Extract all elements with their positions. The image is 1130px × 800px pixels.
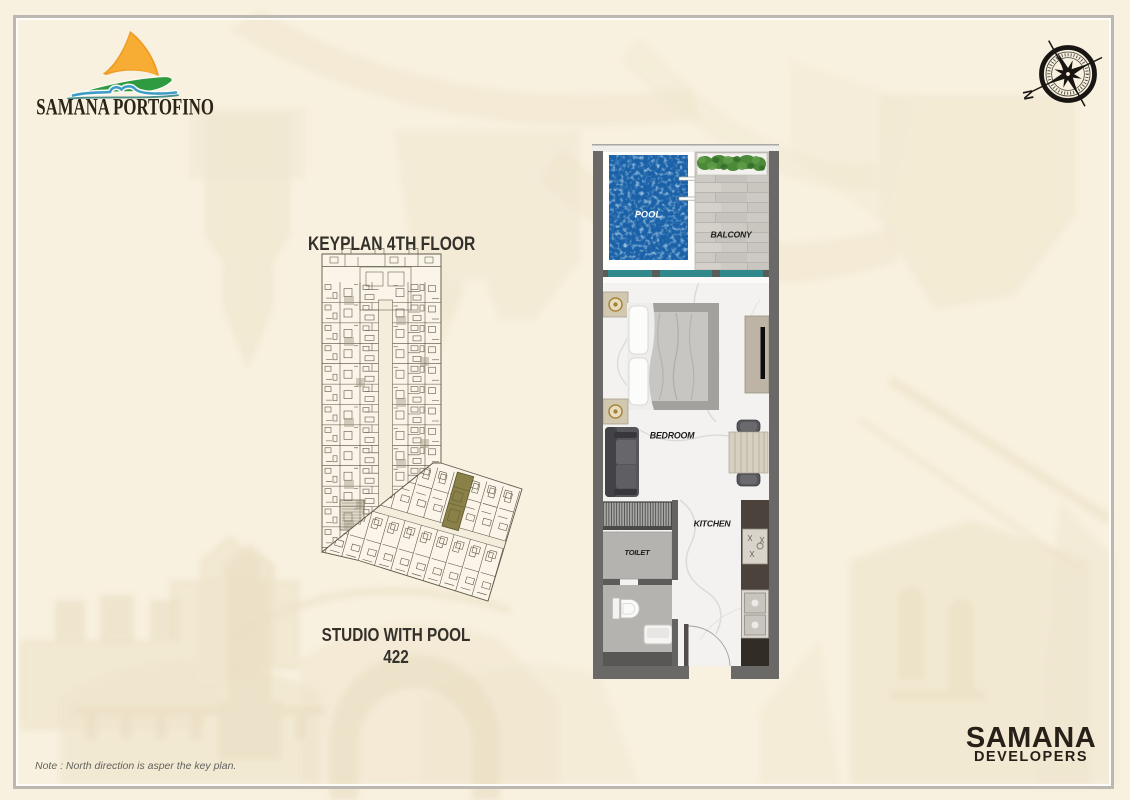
svg-text:BALCONY: BALCONY: [710, 230, 753, 240]
svg-text:TOILET: TOILET: [625, 548, 652, 557]
svg-text:POOL: POOL: [635, 210, 661, 220]
svg-text:BEDROOM: BEDROOM: [650, 431, 695, 441]
svg-text:KITCHEN: KITCHEN: [694, 519, 732, 529]
